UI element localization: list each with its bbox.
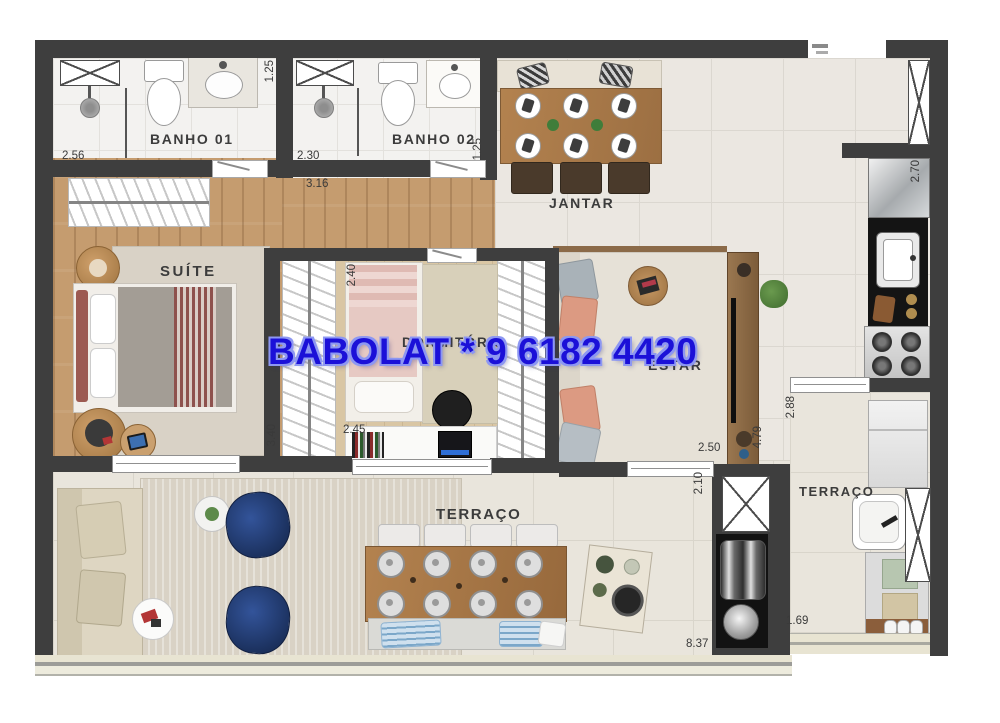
terraco-table	[365, 546, 567, 622]
wall-bath1-bottom	[53, 160, 212, 177]
shower-drain	[314, 98, 334, 118]
tablet	[127, 432, 149, 451]
dim-estar-depth: 4.79	[752, 426, 764, 448]
grill-tray	[579, 544, 653, 633]
stove	[864, 326, 930, 382]
service-ledge	[790, 633, 930, 654]
sofa-pillow	[76, 569, 127, 627]
wall-top	[35, 40, 808, 58]
shaft	[60, 60, 120, 86]
wall-dorm-top-left	[264, 248, 427, 261]
wall-dorm-top-right	[475, 248, 559, 261]
wall-stub	[486, 160, 497, 177]
watermark-text: BABOLAT * 9 6182 4420	[268, 331, 697, 373]
dim-banho1-depth: 1.25	[264, 60, 276, 82]
room-label-terraco: TERRAÇO	[436, 506, 521, 523]
wall-bath2-bottom	[293, 160, 432, 177]
washing-machine	[868, 400, 928, 488]
terrace-chair	[470, 524, 512, 548]
shaft	[722, 476, 770, 532]
dining-chair	[511, 162, 553, 194]
sofa-pillow	[75, 501, 126, 560]
room-label-terraco-servico: TERRAÇO	[799, 484, 874, 499]
terrace-chair	[516, 524, 558, 548]
kitchen-counter	[868, 218, 928, 326]
grill	[720, 540, 766, 600]
grill-counter	[716, 534, 768, 648]
vase	[736, 431, 752, 447]
cutting-board	[872, 295, 895, 324]
dim-servico-depth: 1.69	[786, 615, 808, 627]
dim-banho1-width: 2.56	[62, 150, 84, 162]
wall-suite-bottom-right	[238, 456, 352, 472]
suite-sliding-door	[112, 455, 240, 473]
shower-glass	[357, 88, 359, 156]
side-table	[194, 496, 230, 532]
room-label-suite: SUÍTE	[160, 263, 217, 280]
dorm-window	[352, 459, 492, 475]
plant	[760, 280, 788, 308]
terrace-chair	[378, 524, 420, 548]
jantar-table	[500, 88, 662, 164]
dim-hall-width: 3.16	[306, 178, 328, 190]
dim-banho2-width: 2.30	[297, 150, 319, 162]
wall-right	[930, 56, 948, 656]
toilet	[140, 58, 186, 128]
wall-estar-bottom	[559, 462, 629, 477]
laundry-sink	[852, 494, 906, 550]
wall-suite-bottom-left	[53, 456, 113, 472]
side-table	[72, 408, 126, 462]
dim-cozinha-depth: 2.70	[910, 160, 922, 182]
entry-door-icon	[812, 44, 828, 48]
suite-closet	[68, 178, 210, 227]
banho2-door	[430, 160, 486, 178]
kitchen-sink	[876, 232, 920, 288]
bench-pillow	[499, 621, 543, 647]
vase	[737, 263, 751, 277]
service-sliding-door	[790, 377, 870, 393]
bed-pillow	[354, 381, 414, 413]
shower-head-icon	[322, 86, 325, 98]
tv	[731, 298, 736, 423]
lamp	[89, 259, 107, 277]
shower-glass	[125, 88, 127, 158]
wall-kitchen-stub	[842, 143, 930, 158]
dining-chair	[608, 162, 650, 194]
bathroom-sink	[426, 60, 484, 108]
bed-pillow	[90, 294, 116, 344]
floor-plan: BANHO 01 BANHO 02 JANTAR SUÍTE DORMITÓRI…	[0, 0, 1000, 723]
shaft	[296, 60, 354, 86]
vase	[739, 449, 749, 459]
bed-pillow	[90, 348, 116, 398]
wall-dorm-bottom	[490, 458, 559, 473]
room-label-jantar: JANTAR	[549, 195, 614, 211]
coffee-table	[628, 266, 668, 306]
shaft	[905, 488, 931, 582]
dim-estar-width: 2.50	[698, 442, 720, 454]
banho1-door	[212, 160, 268, 178]
dim-suite-depth: 3.40	[266, 424, 278, 446]
dim-servico-width: 2.88	[785, 396, 797, 418]
plant	[205, 507, 219, 521]
wall-stub	[266, 160, 293, 177]
dim-banho2-depth: 1.25	[472, 138, 484, 160]
dim-dorm-depth: 2.40	[346, 264, 358, 286]
terraco-sofa	[57, 488, 143, 656]
dining-chair	[560, 162, 602, 194]
bed-runner	[174, 287, 216, 407]
shower-head-icon	[88, 86, 91, 98]
shaft	[908, 60, 930, 145]
suite-bed	[73, 283, 237, 413]
wall-kitchen-service	[868, 378, 930, 392]
dorm-door	[427, 248, 477, 263]
grill-pot	[723, 604, 759, 640]
towel	[882, 593, 918, 621]
bathroom-sink	[188, 56, 258, 108]
plant	[547, 119, 559, 131]
bench-pillow	[380, 619, 441, 648]
room-label-banho2: BANHO 02	[392, 131, 476, 147]
wall-left	[35, 40, 53, 658]
room-label-banho1: BANHO 01	[150, 131, 234, 147]
monitor	[438, 431, 472, 458]
bench-pillow	[537, 620, 566, 647]
entry-door-icon	[816, 51, 828, 54]
desk-chair	[432, 390, 472, 430]
side-table	[132, 598, 174, 640]
terraco-bench	[368, 618, 566, 650]
dim-dorm-width: 2.45	[343, 424, 365, 436]
terrace-railing	[35, 655, 792, 680]
dim-terraco-width: 8.37	[686, 638, 708, 650]
terrace-chair	[424, 524, 466, 548]
plant	[591, 119, 603, 131]
dim-churrasqueira-depth: 2.10	[693, 472, 705, 494]
shower-drain	[80, 98, 100, 118]
toilet	[374, 60, 420, 128]
